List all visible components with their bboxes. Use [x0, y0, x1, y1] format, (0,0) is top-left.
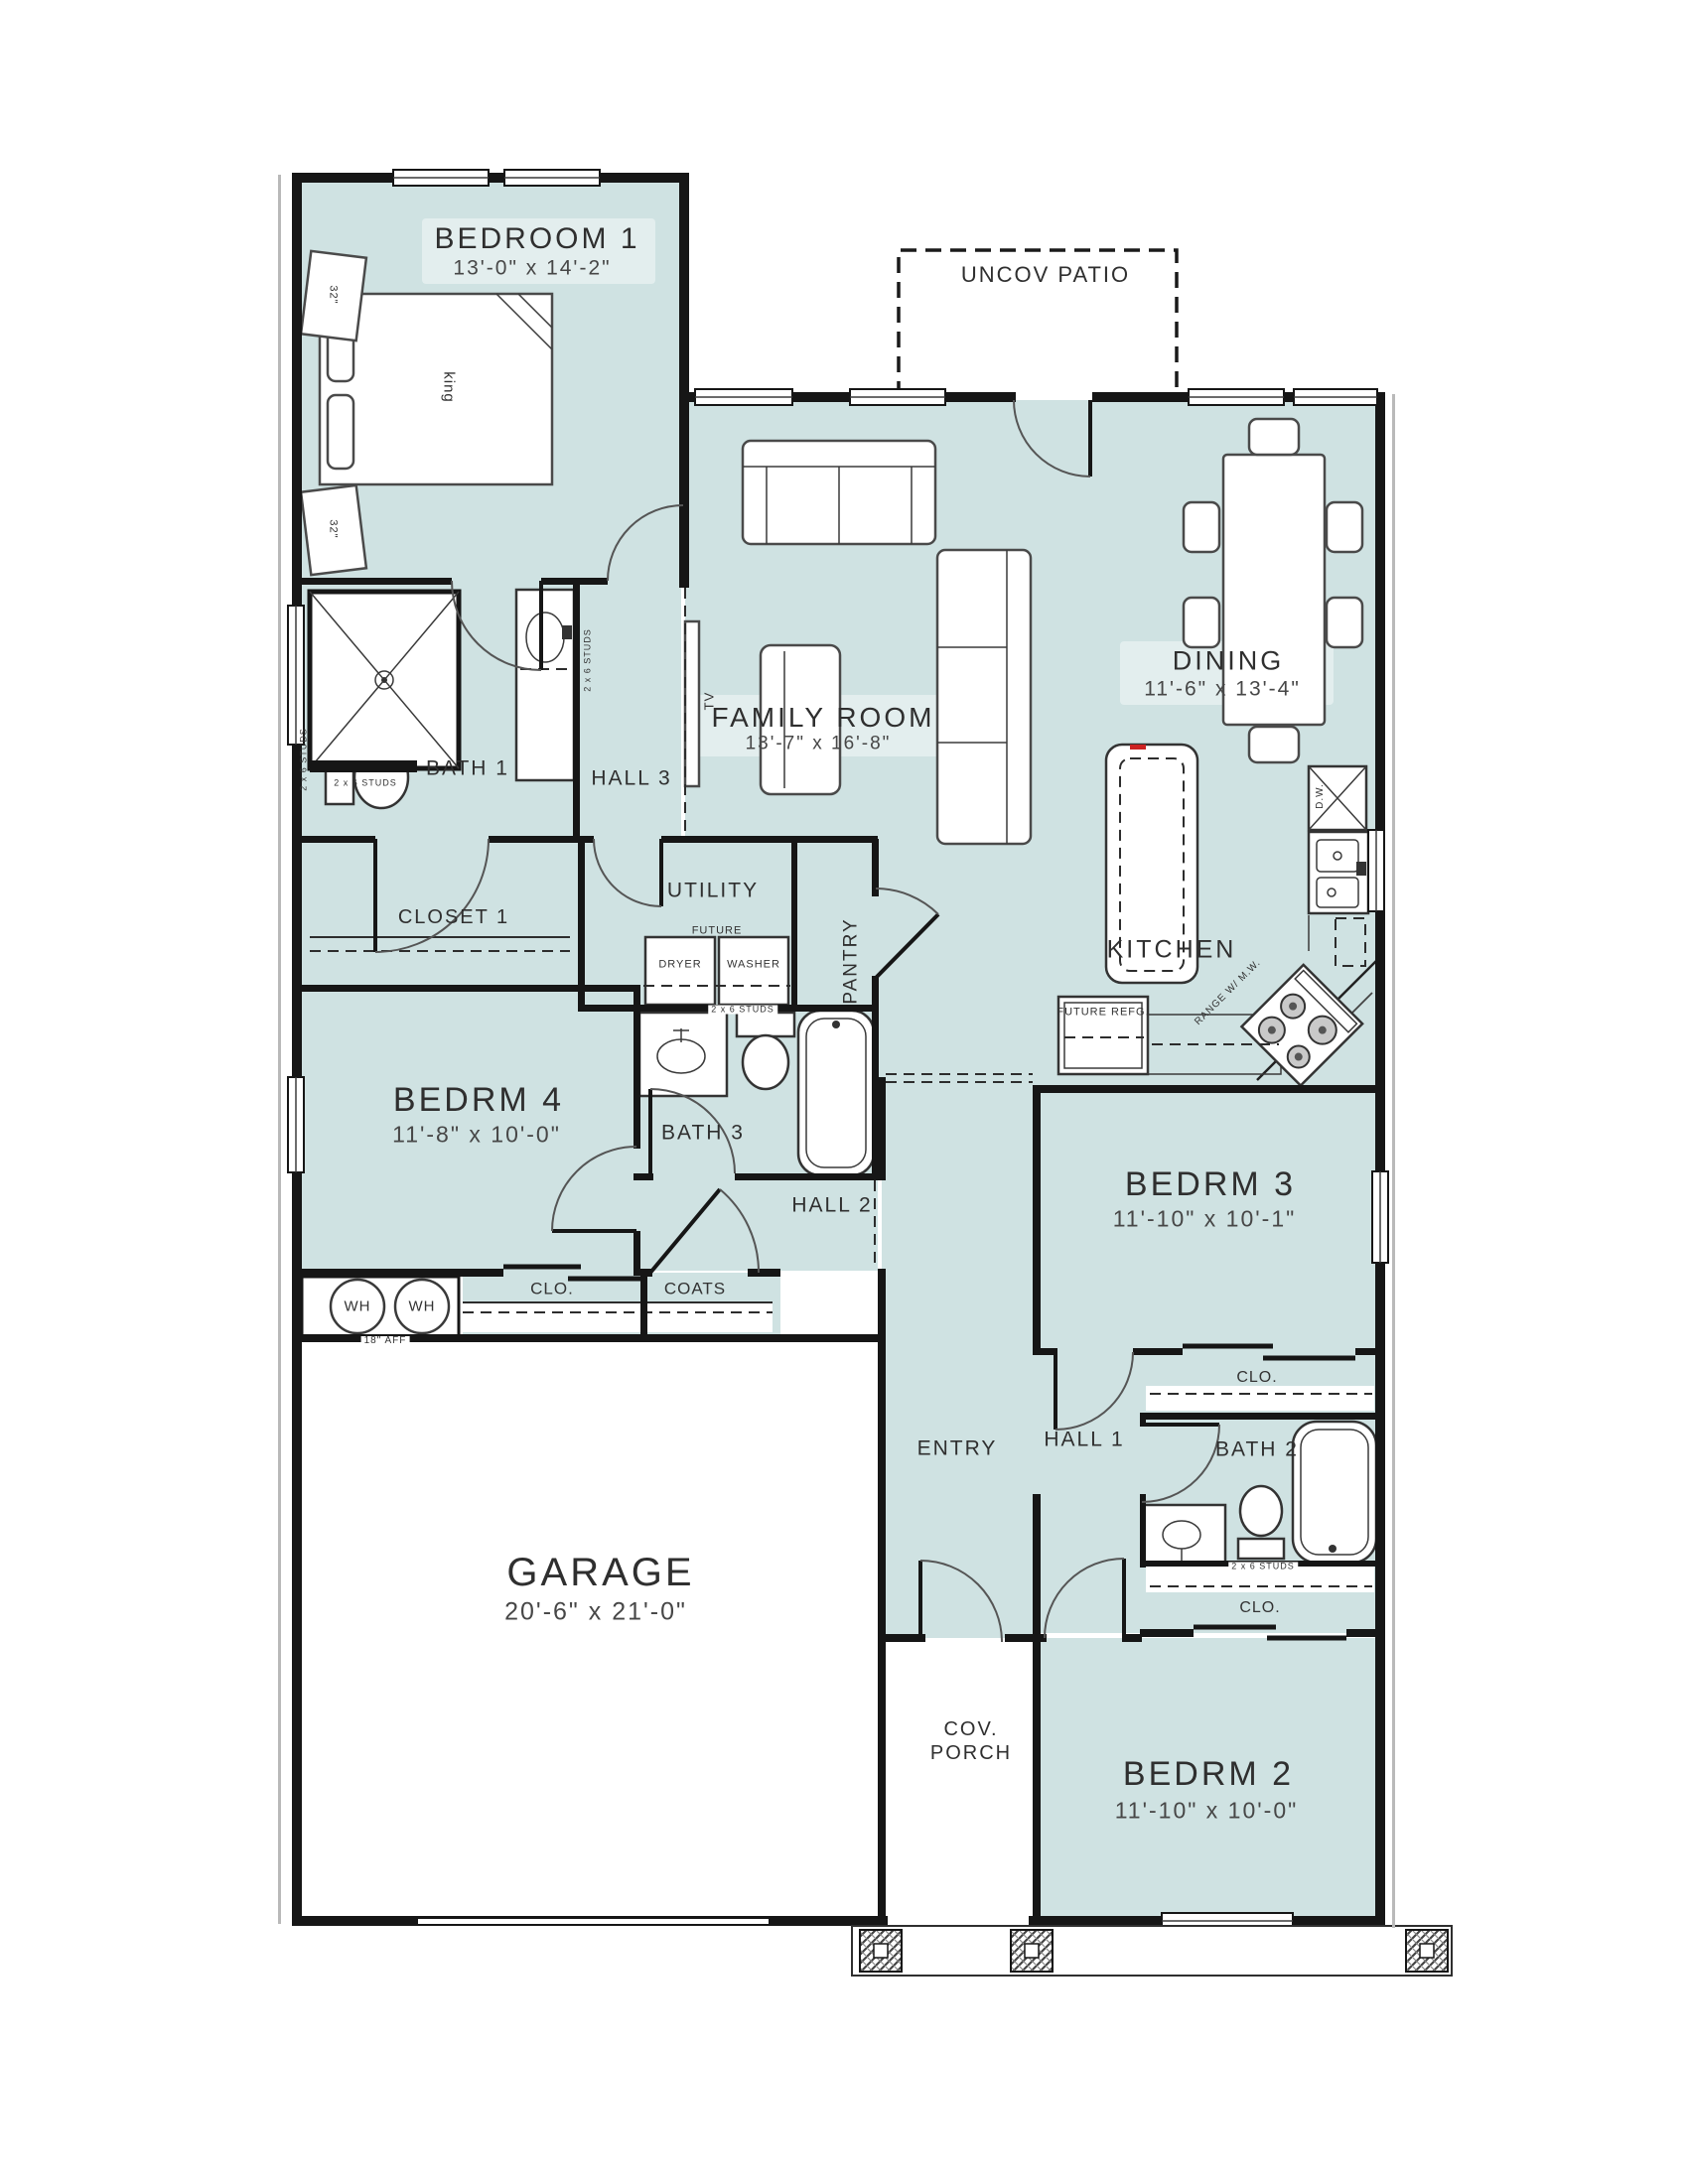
studs-note-bath2: 2 x 6 STUDS [1228, 1563, 1298, 1571]
hall2-label: HALL 2 [791, 1195, 872, 1216]
nightstand1-size: 32" [328, 285, 339, 304]
coats-label: COATS [664, 1281, 726, 1297]
bedrm3-dims: 11'-10" x 10'-1" [1113, 1208, 1297, 1231]
family-room-dims: 13'-7" x 16'-8" [746, 735, 892, 753]
clo-bedrm3-label: CLO. [1236, 1370, 1277, 1386]
dishwasher-label: D.W. [1316, 783, 1326, 809]
bedroom1-label: BEDROOM 1 [434, 224, 639, 254]
kitchen-label: KITCHEN [1107, 938, 1237, 963]
bath1-label: BATH 1 [426, 758, 509, 779]
bedrm4-label: BEDRM 4 [393, 1083, 564, 1117]
studs-note-shower: 2 x 6 STUDS [334, 779, 397, 788]
washer-label: WASHER [727, 960, 780, 971]
shower [310, 592, 459, 772]
wh1-label: WH [345, 1299, 371, 1314]
cov-porch-label-1: COV. [943, 1719, 998, 1739]
bedrm2-label: BEDRM 2 [1123, 1757, 1294, 1791]
porch [852, 1926, 1452, 1976]
bedrm3-label: BEDRM 3 [1125, 1167, 1296, 1201]
bath3-label: BATH 3 [661, 1123, 745, 1144]
closet1-label: CLOSET 1 [398, 907, 509, 927]
utility-label: UTILITY [667, 881, 759, 901]
bed-size-label: king [442, 371, 457, 403]
wh2-label: WH [409, 1299, 436, 1314]
cov-porch-label-2: PORCH [930, 1743, 1012, 1763]
studs-note-utility: 2 x 6 STUDS [708, 1006, 777, 1015]
future-label: FUTURE [692, 926, 743, 937]
dryer-label: DRYER [658, 960, 701, 971]
hall3-label: HALL 3 [591, 768, 671, 789]
garage-dims: 20'-6" x 21'-0" [504, 1600, 687, 1625]
garage-door [417, 1918, 770, 1925]
patio-label: UNCOV PATIO [961, 264, 1130, 286]
wh-note: 18" AFF [361, 1336, 410, 1346]
hall1-label: HALL 1 [1044, 1430, 1124, 1450]
garage-label: GARAGE [506, 1553, 694, 1592]
studs-note-vanity-wall: 2 x 6 STUDS [584, 628, 593, 692]
pantry-label: PANTRY [842, 917, 861, 1004]
floorplan-drawing [0, 0, 1688, 2184]
bedrm4-dims: 11'-8" x 10'-0" [392, 1124, 561, 1147]
dining-label: DINING [1173, 648, 1285, 675]
dining-dims: 11'-6" x 13'-4" [1144, 679, 1301, 700]
bath2-label: BATH 2 [1215, 1439, 1299, 1460]
studs-note-bath1-wall: 2 x 6 STUDS [300, 728, 309, 791]
clo-bedrm2-label: CLO. [1239, 1600, 1280, 1616]
future-refg-label: FUTURE REFG. [1056, 1008, 1149, 1019]
tv-label: TV [703, 692, 716, 711]
floor-plan-page: BEDROOM 1 13'-0" x 14'-2" UNCOV PATIO FA… [0, 0, 1688, 2184]
bedroom1-dims: 13'-0" x 14'-2" [453, 258, 611, 279]
entry-label: ENTRY [917, 1438, 998, 1459]
nightstand2-size: 32" [328, 519, 339, 538]
family-room-label: FAMILY ROOM [712, 704, 935, 732]
bedrm2-dims: 11'-10" x 10'-0" [1115, 1800, 1299, 1823]
clo-hall-label: CLO. [530, 1281, 574, 1297]
